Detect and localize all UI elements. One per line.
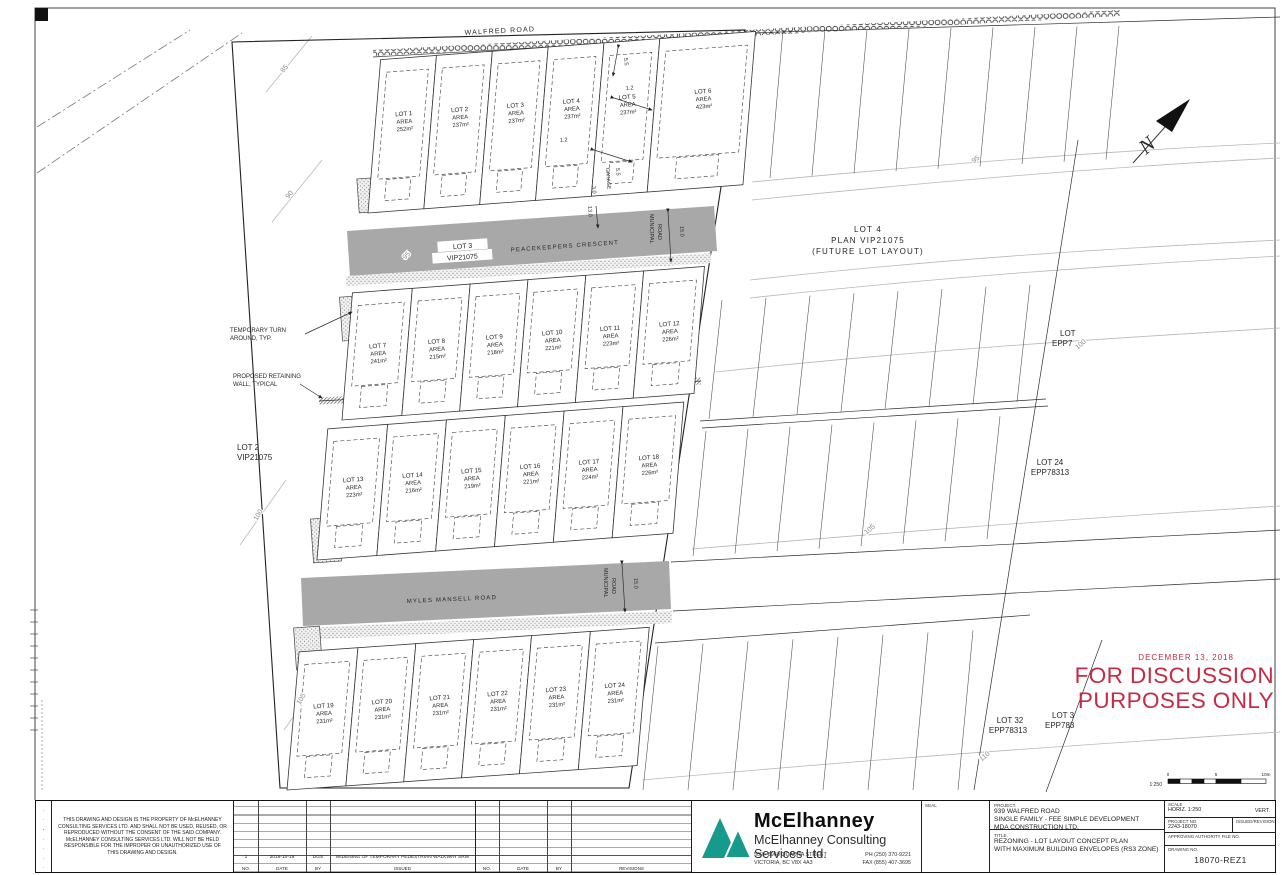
rev-header-by: BY	[306, 866, 330, 871]
area-word: AREA	[548, 694, 564, 701]
lot-area: 218m²	[487, 349, 504, 356]
svg-text:LOT 24: LOT 24	[1037, 458, 1064, 467]
svg-text:1:250: 1:250	[1149, 782, 1162, 788]
lot-area: 423m²	[696, 104, 713, 111]
lot-label: LOT 1AREA252m²	[395, 110, 414, 133]
area-word: AREA	[396, 119, 412, 126]
project-box: PROJECT. 939 WALFRED ROAD SINGLE FAMILY …	[989, 801, 1164, 872]
title-block: THIS DRAWING AND DESIGN IS THE PROPERTY …	[35, 800, 1276, 873]
discussion-stamp: DECEMBER 13, 2018 FOR DISCUSSION PURPOSE…	[1048, 654, 1274, 713]
svg-text:3.0: 3.0	[590, 186, 597, 194]
area-word: AREA	[695, 96, 711, 103]
area-word: AREA	[508, 110, 524, 117]
area-word: AREA	[582, 467, 598, 474]
lot-area: 237m²	[620, 109, 637, 116]
area-word: AREA	[432, 703, 448, 710]
municipal-road-label-1: MUNICIPAL	[648, 214, 654, 244]
lot-area: 252m²	[397, 126, 414, 133]
lot-label: LOT 9AREA218m²	[486, 333, 505, 356]
copyright-note: THIS DRAWING AND DESIGN IS THE PROPERTY …	[51, 801, 233, 872]
lot-name: LOT 22	[487, 690, 509, 698]
title-line-2: WITH MAXIMUM BUILDING ENVELOPES (RS3 ZON…	[994, 846, 1160, 854]
area-word: AREA	[464, 476, 480, 483]
info-column: SCALE HORIZ. 1:250 VERT. PROJECT NO. 224…	[1164, 801, 1276, 872]
company-logo-text: McElhanney	[754, 810, 875, 833]
area-word: AREA	[607, 690, 623, 697]
lot-area: 237m²	[452, 122, 469, 129]
rev-entry-by: DGS	[306, 855, 330, 860]
company-block: McElhanney McElhanney Consulting Service…	[691, 801, 921, 872]
plot-info-strip	[36, 801, 51, 872]
svg-text:LOT: LOT	[1060, 329, 1076, 338]
scale-horiz: HORIZ. 1:250	[1168, 807, 1201, 813]
svg-text:EPP783: EPP783	[1045, 721, 1075, 730]
area-word: AREA	[370, 351, 386, 358]
area-word: AREA	[429, 346, 445, 353]
seal-label: SEAL	[925, 803, 937, 808]
seal-box: SEAL	[921, 801, 989, 872]
lot-area: 241m²	[370, 358, 387, 365]
lot-parcel	[647, 31, 755, 192]
svg-text:15.0: 15.0	[678, 226, 685, 237]
lot-row: LOT 1AREA252m²LOT 2AREA237m²LOT 3AREA237…	[357, 31, 767, 213]
rev-header-date2: DATE	[499, 866, 547, 871]
area-word: AREA	[523, 471, 539, 478]
lot-name: LOT 7	[369, 342, 387, 350]
svg-text:85: 85	[280, 64, 290, 75]
rev-header-by2: BY	[547, 866, 571, 871]
rev-header-no2: NO.	[475, 866, 499, 871]
lot-name: LOT 24	[604, 682, 626, 690]
scale-vert: VERT.	[1255, 808, 1270, 814]
lot-area: 221m²	[523, 479, 540, 486]
rev-entry-no: 1	[234, 855, 258, 860]
area-word: AREA	[490, 699, 506, 706]
svg-text:13.0: 13.0	[586, 206, 593, 217]
municipal-road-label-2: MUNICIPAL	[602, 568, 608, 598]
plan-annotations: TEMPORARY TURN AROUND, TYP. PROPOSED RET…	[230, 312, 352, 398]
svg-text:AROUND, TYP.: AROUND, TYP.	[230, 336, 272, 342]
svg-text:LOT 2: LOT 2	[237, 443, 260, 452]
rev-header-revisions: REVISIONS	[571, 866, 692, 871]
company-address-1: 500 - 3960 QUADRA STREET	[754, 851, 827, 859]
area-word: AREA	[641, 462, 657, 469]
north-label: N	[1133, 131, 1161, 160]
project-line-2: SINGLE FAMILY - FEE SIMPLE DEVELOPMENT	[994, 816, 1160, 824]
north-arrow: N	[1133, 99, 1190, 163]
area-word: AREA	[564, 106, 580, 113]
area-word: AREA	[405, 480, 421, 487]
svg-text:EPP78313: EPP78313	[989, 726, 1028, 735]
svg-text:PROPOSED RETAINING: PROPOSED RETAINING	[233, 374, 301, 380]
lots-layer: LOT 1AREA252m²LOT 2AREA237m²LOT 3AREA237…	[277, 31, 767, 790]
lot-name: LOT 19	[313, 702, 335, 710]
lot-area: 237m²	[508, 118, 525, 125]
svg-text:PLAN VIP21075: PLAN VIP21075	[831, 236, 905, 245]
mcelhanney-logo-icon	[700, 812, 752, 860]
municipal-road-label-1b: ROAD	[656, 224, 662, 240]
svg-text:5: 5	[1215, 772, 1218, 777]
lot-name: LOT 9	[486, 333, 504, 341]
lot-name: LOT 20	[371, 698, 393, 706]
svg-text:WALL, TYPICAL: WALL, TYPICAL	[233, 382, 278, 388]
lot-area: 237m²	[564, 114, 581, 121]
lot-label: LOT 2AREA237m²	[451, 106, 470, 129]
area-word: AREA	[452, 114, 468, 121]
scale-bar: 1:250 0 5 10m	[1149, 772, 1270, 788]
copyright-text: THIS DRAWING AND DESIGN IS THE PROPERTY …	[58, 817, 227, 856]
company-phone: PH (250) 370-9221	[862, 851, 911, 859]
area-word: AREA	[374, 707, 390, 714]
svg-text:LOT 3: LOT 3	[453, 243, 473, 251]
svg-text:0: 0	[1167, 772, 1170, 777]
lot-area: 221m²	[545, 345, 562, 352]
municipal-road-label-2b: ROAD	[610, 578, 616, 594]
lot-label: LOT 5AREA237m²	[618, 93, 637, 116]
lot-area: 215m²	[429, 354, 446, 361]
lot-area: 231m²	[549, 702, 566, 709]
drawing-sheet: LOT 1AREA252m²LOT 2AREA237m²LOT 3AREA237…	[0, 0, 1282, 875]
lot-name: LOT 3	[507, 102, 525, 110]
rev-entry-desc: WIDENING OF TEMPORARY PEDESTRIAN WALKWAY…	[330, 855, 475, 860]
svg-text:5.5: 5.5	[622, 58, 629, 66]
svg-text:LOT 4: LOT 4	[854, 225, 882, 234]
stamp-line2: PURPOSES ONLY	[1048, 688, 1274, 713]
lot-name: LOT 23	[545, 686, 567, 694]
lot-name: LOT 6	[694, 88, 712, 96]
lot-area: 223m²	[346, 492, 363, 499]
lot-area: 226m²	[642, 470, 659, 477]
area-word: AREA	[603, 333, 619, 340]
stamp-date: DECEMBER 13, 2018	[1048, 654, 1234, 663]
area-word: AREA	[662, 329, 678, 336]
lot-label: LOT 3AREA237m²	[507, 102, 526, 125]
project-no-value: 2243-18070	[1168, 824, 1197, 830]
svg-text:10m: 10m	[1262, 772, 1271, 777]
area-word: AREA	[346, 485, 362, 492]
svg-text:1.2: 1.2	[560, 137, 568, 144]
svg-text:TEMPORARY TURN: TEMPORARY TURN	[230, 328, 286, 334]
lot-area: 231m²	[374, 714, 391, 721]
rev-header-issued: ISSUED	[330, 866, 475, 871]
drawing-no-value: 18070-REZ1	[1168, 855, 1273, 865]
svg-text:1.2: 1.2	[626, 85, 634, 92]
lot-label: LOT 7AREA241m²	[369, 342, 388, 365]
lot-row: LOT 19AREA231m²LOT 20AREA231m²LOT 21AREA…	[277, 627, 658, 790]
svg-text:5.5: 5.5	[614, 168, 621, 176]
svg-text:90: 90	[285, 190, 295, 201]
lot-area: 231m²	[432, 710, 449, 717]
project-line-1: 939 WALFRED ROAD	[994, 808, 1160, 816]
approving-authority-label: APPROVING AUTHORITY FILE NO.	[1168, 834, 1273, 839]
lot-name: LOT 1	[395, 110, 413, 118]
lot-label: LOT 8AREA215m²	[428, 338, 447, 361]
svg-text:VIP21075: VIP21075	[237, 453, 273, 462]
lot-area: 224m²	[582, 474, 599, 481]
lot-name: LOT 4	[563, 98, 581, 106]
lot-area: 231m²	[607, 698, 624, 705]
svg-text:EPP78313: EPP78313	[1031, 468, 1070, 477]
lot-name: LOT 8	[428, 338, 446, 346]
lot-area: 219m²	[464, 483, 481, 490]
lot-area: 231m²	[316, 718, 333, 725]
svg-text:15.0: 15.0	[632, 578, 639, 589]
svg-text:EPP7: EPP7	[1052, 339, 1073, 348]
area-word: AREA	[316, 711, 332, 718]
lot-area: 223m²	[603, 341, 620, 348]
lot-label: LOT 4AREA237m²	[563, 98, 582, 121]
existing-road-lines	[37, 30, 242, 173]
area-word: AREA	[545, 338, 561, 345]
company-fax: FAX (855) 407-3695	[862, 859, 911, 867]
lot-row: LOT 13AREA223m²LOT 14AREA216m²LOT 15AREA…	[307, 402, 693, 560]
title-line-1: REZONING - LOT LAYOUT CONCEPT PLAN	[994, 838, 1160, 846]
area-word: AREA	[620, 102, 636, 109]
lot-name: LOT 2	[451, 106, 469, 114]
rev-header-date: DATE	[258, 866, 306, 871]
rev-entry-date: 2018-10-19	[258, 855, 306, 860]
revision-table: NO. DATE BY ISSUED NO. DATE BY REVISIONS…	[233, 801, 691, 872]
drawing-no-label: DRAWING NO.	[1168, 847, 1273, 852]
lot-area: 226m²	[662, 336, 679, 343]
lot-label: LOT 6AREA423m²	[694, 88, 713, 111]
border-ticks	[30, 610, 38, 730]
rev-header-no: NO.	[234, 866, 258, 871]
issued-revision-label: ISSUED/REVISION	[1236, 819, 1273, 824]
svg-text:LOT 32: LOT 32	[997, 716, 1024, 725]
lot-row: LOT 7AREA241m²LOT 8AREA215m²LOT 9AREA218…	[333, 266, 714, 420]
lot-area: 216m²	[405, 488, 422, 495]
lot-name: LOT 21	[429, 694, 451, 702]
company-address-2: VICTORIA, BC V8X 4A3	[754, 859, 827, 867]
lot-area: 231m²	[490, 706, 507, 713]
svg-text:95: 95	[971, 155, 982, 165]
svg-text:(FUTURE LOT LAYOUT): (FUTURE LOT LAYOUT)	[812, 247, 924, 256]
area-word: AREA	[487, 342, 503, 349]
stamp-line1: FOR DISCUSSION	[1048, 663, 1274, 688]
